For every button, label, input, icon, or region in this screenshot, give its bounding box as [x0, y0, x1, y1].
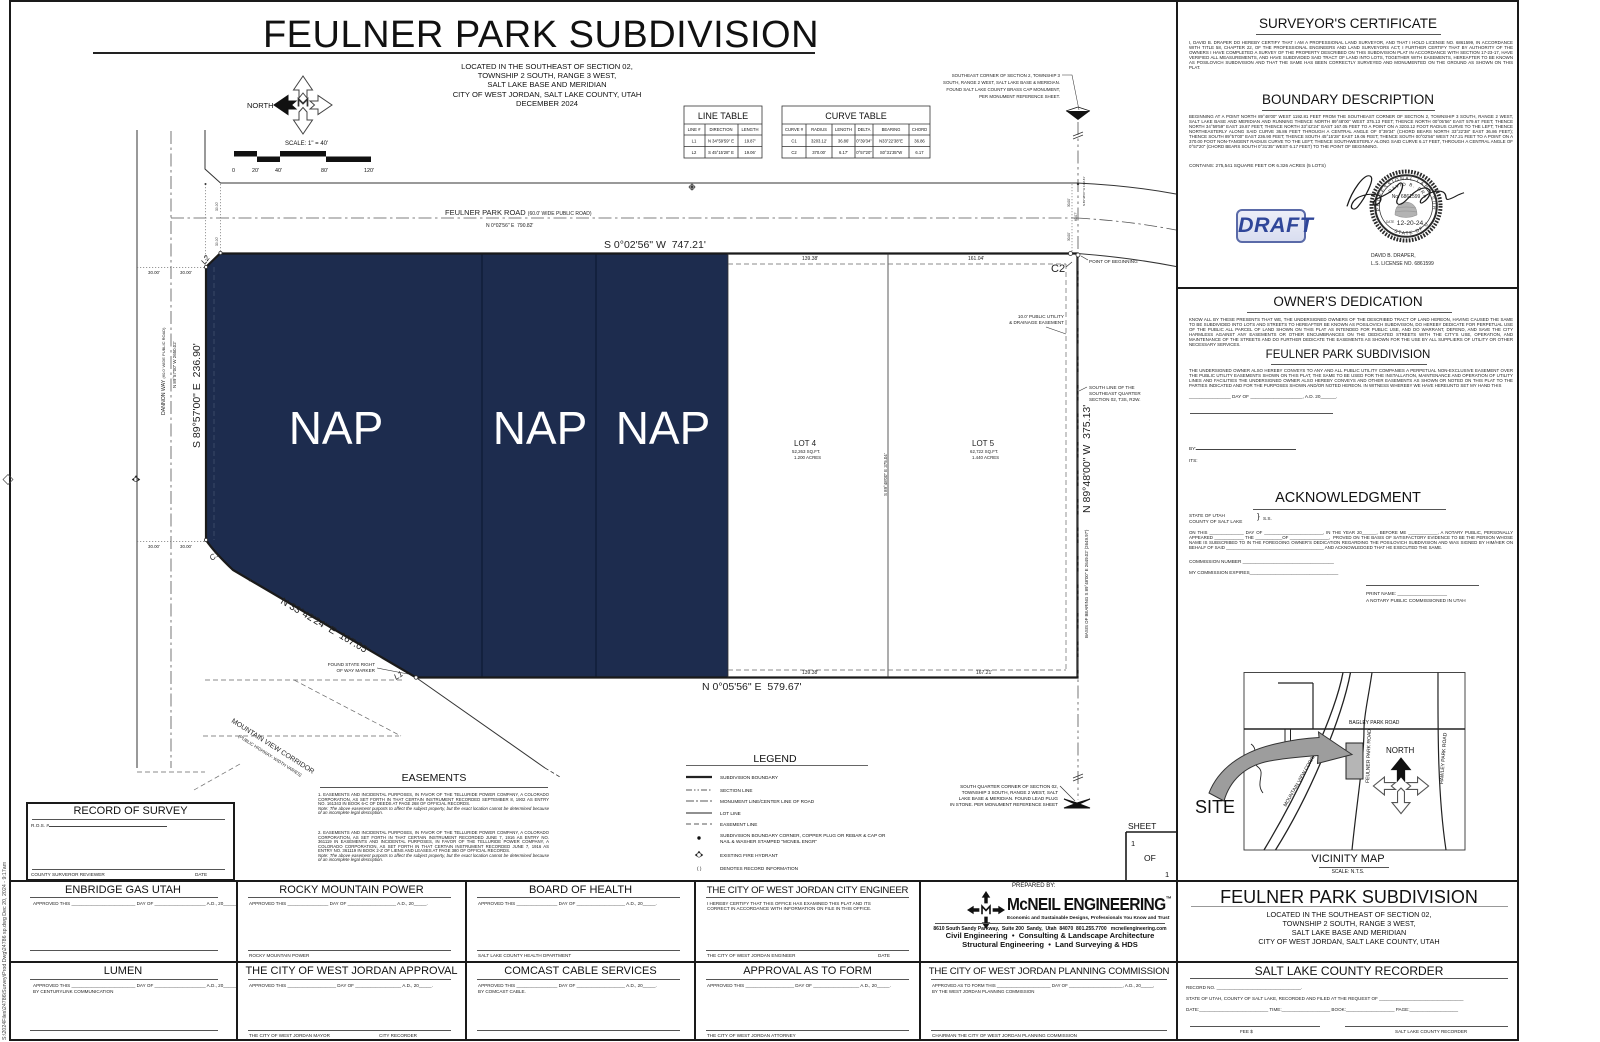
- svg-text:NAIL & WASHER STAMPED "MCNEIL: NAIL & WASHER STAMPED "MCNEIL ENGR": [720, 839, 817, 844]
- svg-text:No. 6861599: No. 6861599: [1392, 194, 1421, 200]
- svg-text:N 0°02'56" E 790.82': N 0°02'56" E 790.82': [486, 223, 533, 229]
- svg-text:30.00': 30.00': [148, 270, 160, 275]
- svg-text:SOUTHEAST QUARTER: SOUTHEAST QUARTER: [1089, 391, 1141, 396]
- svg-text:LOT LINE: LOT LINE: [720, 811, 741, 816]
- svg-text:N 89°48'00" W 1192.81': N 89°48'00" W 1192.81': [1082, 176, 1086, 206]
- svg-text:BAGLEY PARK ROAD: BAGLEY PARK ROAD: [1349, 720, 1400, 726]
- svg-text:TOWNSHIP 3 SOUTH, RANGE 2 WEST: TOWNSHIP 3 SOUTH, RANGE 2 WEST, SALT: [962, 790, 1058, 795]
- svg-text:EASEMENT LINE: EASEMENT LINE: [720, 822, 757, 827]
- svg-text:CURVE TABLE: CURVE TABLE: [825, 111, 887, 121]
- svg-text:1: 1: [1131, 839, 1135, 848]
- svg-text:6.17': 6.17': [839, 150, 848, 155]
- svg-text:N 0°05'56" E 579.67': N 0°05'56" E 579.67': [702, 681, 802, 693]
- svg-text:LOT 4: LOT 4: [794, 439, 817, 448]
- svg-text:( ): ( ): [697, 866, 702, 871]
- svg-text:CURVE #: CURVE #: [785, 127, 804, 132]
- svg-text:1.200 ACRES: 1.200 ACRES: [794, 455, 821, 460]
- svg-text:40': 40': [275, 168, 282, 174]
- svg-text:0°39'34": 0°39'34": [856, 139, 872, 144]
- svg-text:139.38': 139.38': [802, 670, 818, 676]
- svg-text:CHORD: CHORD: [912, 127, 927, 132]
- svg-text:N 34°59'59" E: N 34°59'59" E: [708, 139, 734, 144]
- svg-text:NORTH: NORTH: [247, 101, 274, 110]
- svg-text:MONUMENT LINE/CENTER LINE OF R: MONUMENT LINE/CENTER LINE OF ROAD: [720, 799, 815, 804]
- svg-text:S0°31'35"W: S0°31'35"W: [880, 150, 902, 155]
- svg-text:6.17: 6.17: [915, 150, 924, 155]
- svg-text:36.86': 36.86': [838, 139, 849, 144]
- svg-text:3203.12': 3203.12': [811, 139, 827, 144]
- svg-text:POINT OF BEGINNING: POINT OF BEGINNING: [1089, 259, 1138, 264]
- svg-text:OF: OF: [1144, 853, 1156, 863]
- svg-text:L1: L1: [692, 139, 697, 144]
- svg-text:SECTION 02, T3S, R2W.: SECTION 02, T3S, R2W.: [1089, 397, 1140, 402]
- svg-text:NAP: NAP: [493, 402, 588, 454]
- svg-text:SITE: SITE: [1195, 797, 1235, 817]
- svg-text:IN STONE. PER MONUMENT REFEREN: IN STONE. PER MONUMENT REFERENCE SHEET: [950, 802, 1058, 807]
- svg-text:NORTH: NORTH: [1386, 746, 1415, 755]
- svg-text:62,722 SQ.FT.: 62,722 SQ.FT.: [970, 449, 998, 454]
- svg-text:139.38': 139.38': [802, 256, 818, 262]
- svg-text:DELTA: DELTA: [858, 127, 871, 132]
- svg-text:SECTION LINE: SECTION LINE: [720, 788, 753, 793]
- svg-text:LENGTH: LENGTH: [742, 127, 759, 132]
- svg-text:80': 80': [321, 168, 328, 174]
- svg-text:SOUTH, RANGE 2 WEST, SALT LAKE: SOUTH, RANGE 2 WEST, SALT LAKE BASE & ME…: [943, 80, 1060, 85]
- svg-text:LENGTH: LENGTH: [835, 127, 852, 132]
- svg-text:LAKE BASE & MERIDIAN. FOUND LE: LAKE BASE & MERIDIAN. FOUND LEAD PLUG: [959, 796, 1059, 801]
- svg-text:PER MONUMENT REFERENCE SHEET.: PER MONUMENT REFERENCE SHEET.: [979, 94, 1060, 99]
- svg-text:SOUTHEAST CORNER OF SECTION 2,: SOUTHEAST CORNER OF SECTION 2, TOWNSHIP …: [952, 73, 1061, 78]
- svg-text:SOUTH LINE OF THE: SOUTH LINE OF THE: [1089, 385, 1135, 390]
- svg-text:DANNON WAY (60.0' WIDE PUBLIC: DANNON WAY (60.0' WIDE PUBLIC ROAD): [161, 327, 167, 415]
- svg-text:BASIS OF BEARING S 89°48'00" E: BASIS OF BEARING S 89°48'00" E 2649.02' …: [1084, 529, 1089, 638]
- svg-text:RADIUS: RADIUS: [811, 127, 827, 132]
- svg-text:52,263 SQ.FT.: 52,263 SQ.FT.: [792, 449, 820, 454]
- svg-text:SCALE: 1" = 40': SCALE: 1" = 40': [285, 141, 328, 147]
- svg-text:S 0°02'56" W 747.21': S 0°02'56" W 747.21': [604, 239, 706, 251]
- svg-text:OF WAY MARKER: OF WAY MARKER: [337, 668, 376, 673]
- svg-text:120': 120': [364, 168, 374, 174]
- svg-text:SHEET: SHEET: [1128, 821, 1156, 831]
- svg-text:N33°22'38"E: N33°22'38"E: [879, 139, 903, 144]
- svg-text:10.0' PUBLIC UTILITY: 10.0' PUBLIC UTILITY: [1018, 314, 1064, 319]
- svg-text:30.00': 30.00': [180, 544, 192, 549]
- svg-text:NAP: NAP: [289, 402, 384, 454]
- svg-text:30.00': 30.00': [180, 270, 192, 275]
- svg-text:0: 0: [232, 168, 235, 174]
- svg-text:60.07': 60.07': [1074, 212, 1078, 221]
- svg-text:SUBDIVISION BOUNDARY CORNER, C: SUBDIVISION BOUNDARY CORNER, COPPER PLUG…: [720, 833, 886, 838]
- svg-text:1: 1: [1165, 870, 1169, 879]
- svg-text:S 45°15'28" E: S 45°15'28" E: [708, 150, 734, 155]
- svg-text:SUBDIVISION BOUNDARY: SUBDIVISION BOUNDARY: [720, 775, 779, 780]
- svg-text:FOUND SALT LAKE COUNTY BRASS C: FOUND SALT LAKE COUNTY BRASS CAP MONUMEN…: [946, 87, 1060, 92]
- svg-text:1.440 ACRES: 1.440 ACRES: [972, 455, 999, 460]
- svg-text:LINE TABLE: LINE TABLE: [698, 111, 748, 121]
- svg-text:C2: C2: [791, 150, 797, 155]
- svg-text:30.00': 30.00': [1067, 198, 1071, 207]
- svg-text:N 89°48'00" W 375.13': N 89°48'00" W 375.13': [1081, 405, 1093, 513]
- svg-text:FEULNER PARK ROAD (60.0' WIDE: FEULNER PARK ROAD (60.0' WIDE PUBLIC ROA…: [445, 208, 592, 217]
- svg-text:370.00': 370.00': [812, 150, 826, 155]
- svg-text:SOUTH QUARTER CORNER OF SECTIO: SOUTH QUARTER CORNER OF SECTION 02,: [960, 784, 1058, 789]
- svg-text:MOUNTAIN VIEW CORRIDOR: MOUNTAIN VIEW CORRIDOR: [230, 718, 315, 776]
- svg-text:LOT 5: LOT 5: [972, 439, 995, 448]
- svg-text:EXISTING FIRE HYDRANT: EXISTING FIRE HYDRANT: [720, 853, 778, 858]
- svg-text:C1: C1: [791, 139, 797, 144]
- svg-text:19.06': 19.06': [744, 150, 755, 155]
- svg-text:S 89°57'00" E 236.90': S 89°57'00" E 236.90': [191, 343, 203, 448]
- svg-text:30.00': 30.00': [1067, 232, 1071, 241]
- svg-text:FOUND STATE RIGHT: FOUND STATE RIGHT: [328, 662, 375, 667]
- svg-text:36.86: 36.86: [914, 139, 925, 144]
- svg-text:S 89°48'00" E 375.04': S 89°48'00" E 375.04': [883, 453, 888, 496]
- svg-text:30.00': 30.00': [215, 202, 219, 211]
- svg-text:L2: L2: [692, 150, 697, 155]
- svg-text:161.04': 161.04': [968, 256, 984, 262]
- svg-text:12-20-24: 12-20-24: [1397, 220, 1424, 227]
- svg-text:30.00': 30.00': [148, 544, 160, 549]
- svg-text:DATE: DATE: [1386, 220, 1394, 224]
- svg-text:C2: C2: [1051, 263, 1065, 275]
- svg-text:DIRECTION: DIRECTION: [709, 127, 732, 132]
- svg-text:& DRAINAGE EASEMENT: & DRAINAGE EASEMENT: [1009, 320, 1064, 325]
- svg-text:0°57'20": 0°57'20": [856, 150, 872, 155]
- svg-text:BEARING: BEARING: [882, 127, 901, 132]
- svg-text:N 89°57'00" W 2650.02': N 89°57'00" W 2650.02': [172, 341, 177, 388]
- svg-text:19.87': 19.87': [744, 139, 755, 144]
- svg-text:167.21': 167.21': [976, 670, 992, 676]
- svg-text:20': 20': [252, 168, 259, 174]
- svg-text:30.00': 30.00': [215, 237, 219, 246]
- svg-text:NAP: NAP: [616, 402, 711, 454]
- svg-text:LEGEND: LEGEND: [753, 753, 797, 765]
- svg-text:LINE #: LINE #: [688, 127, 701, 132]
- svg-text:DENOTES RECORD INFORMATION: DENOTES RECORD INFORMATION: [720, 866, 798, 871]
